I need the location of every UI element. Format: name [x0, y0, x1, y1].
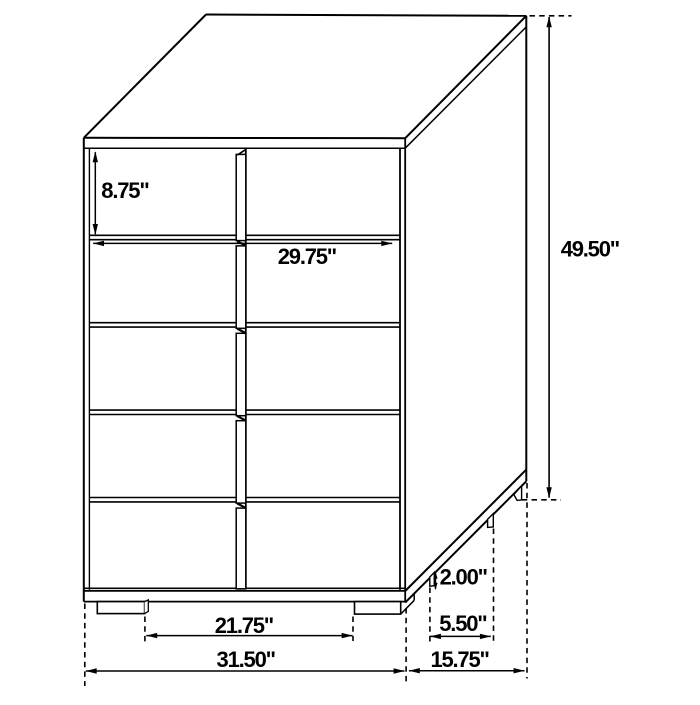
svg-text:31.50": 31.50": [217, 647, 275, 672]
svg-text:2.00": 2.00": [440, 565, 487, 590]
svg-text:49.50": 49.50": [561, 237, 619, 262]
svg-text:21.75": 21.75": [215, 613, 273, 638]
svg-text:15.75": 15.75": [430, 647, 488, 672]
svg-text:29.75": 29.75": [278, 244, 336, 269]
svg-text:8.75": 8.75": [101, 178, 148, 203]
svg-text:5.50": 5.50": [439, 611, 486, 636]
